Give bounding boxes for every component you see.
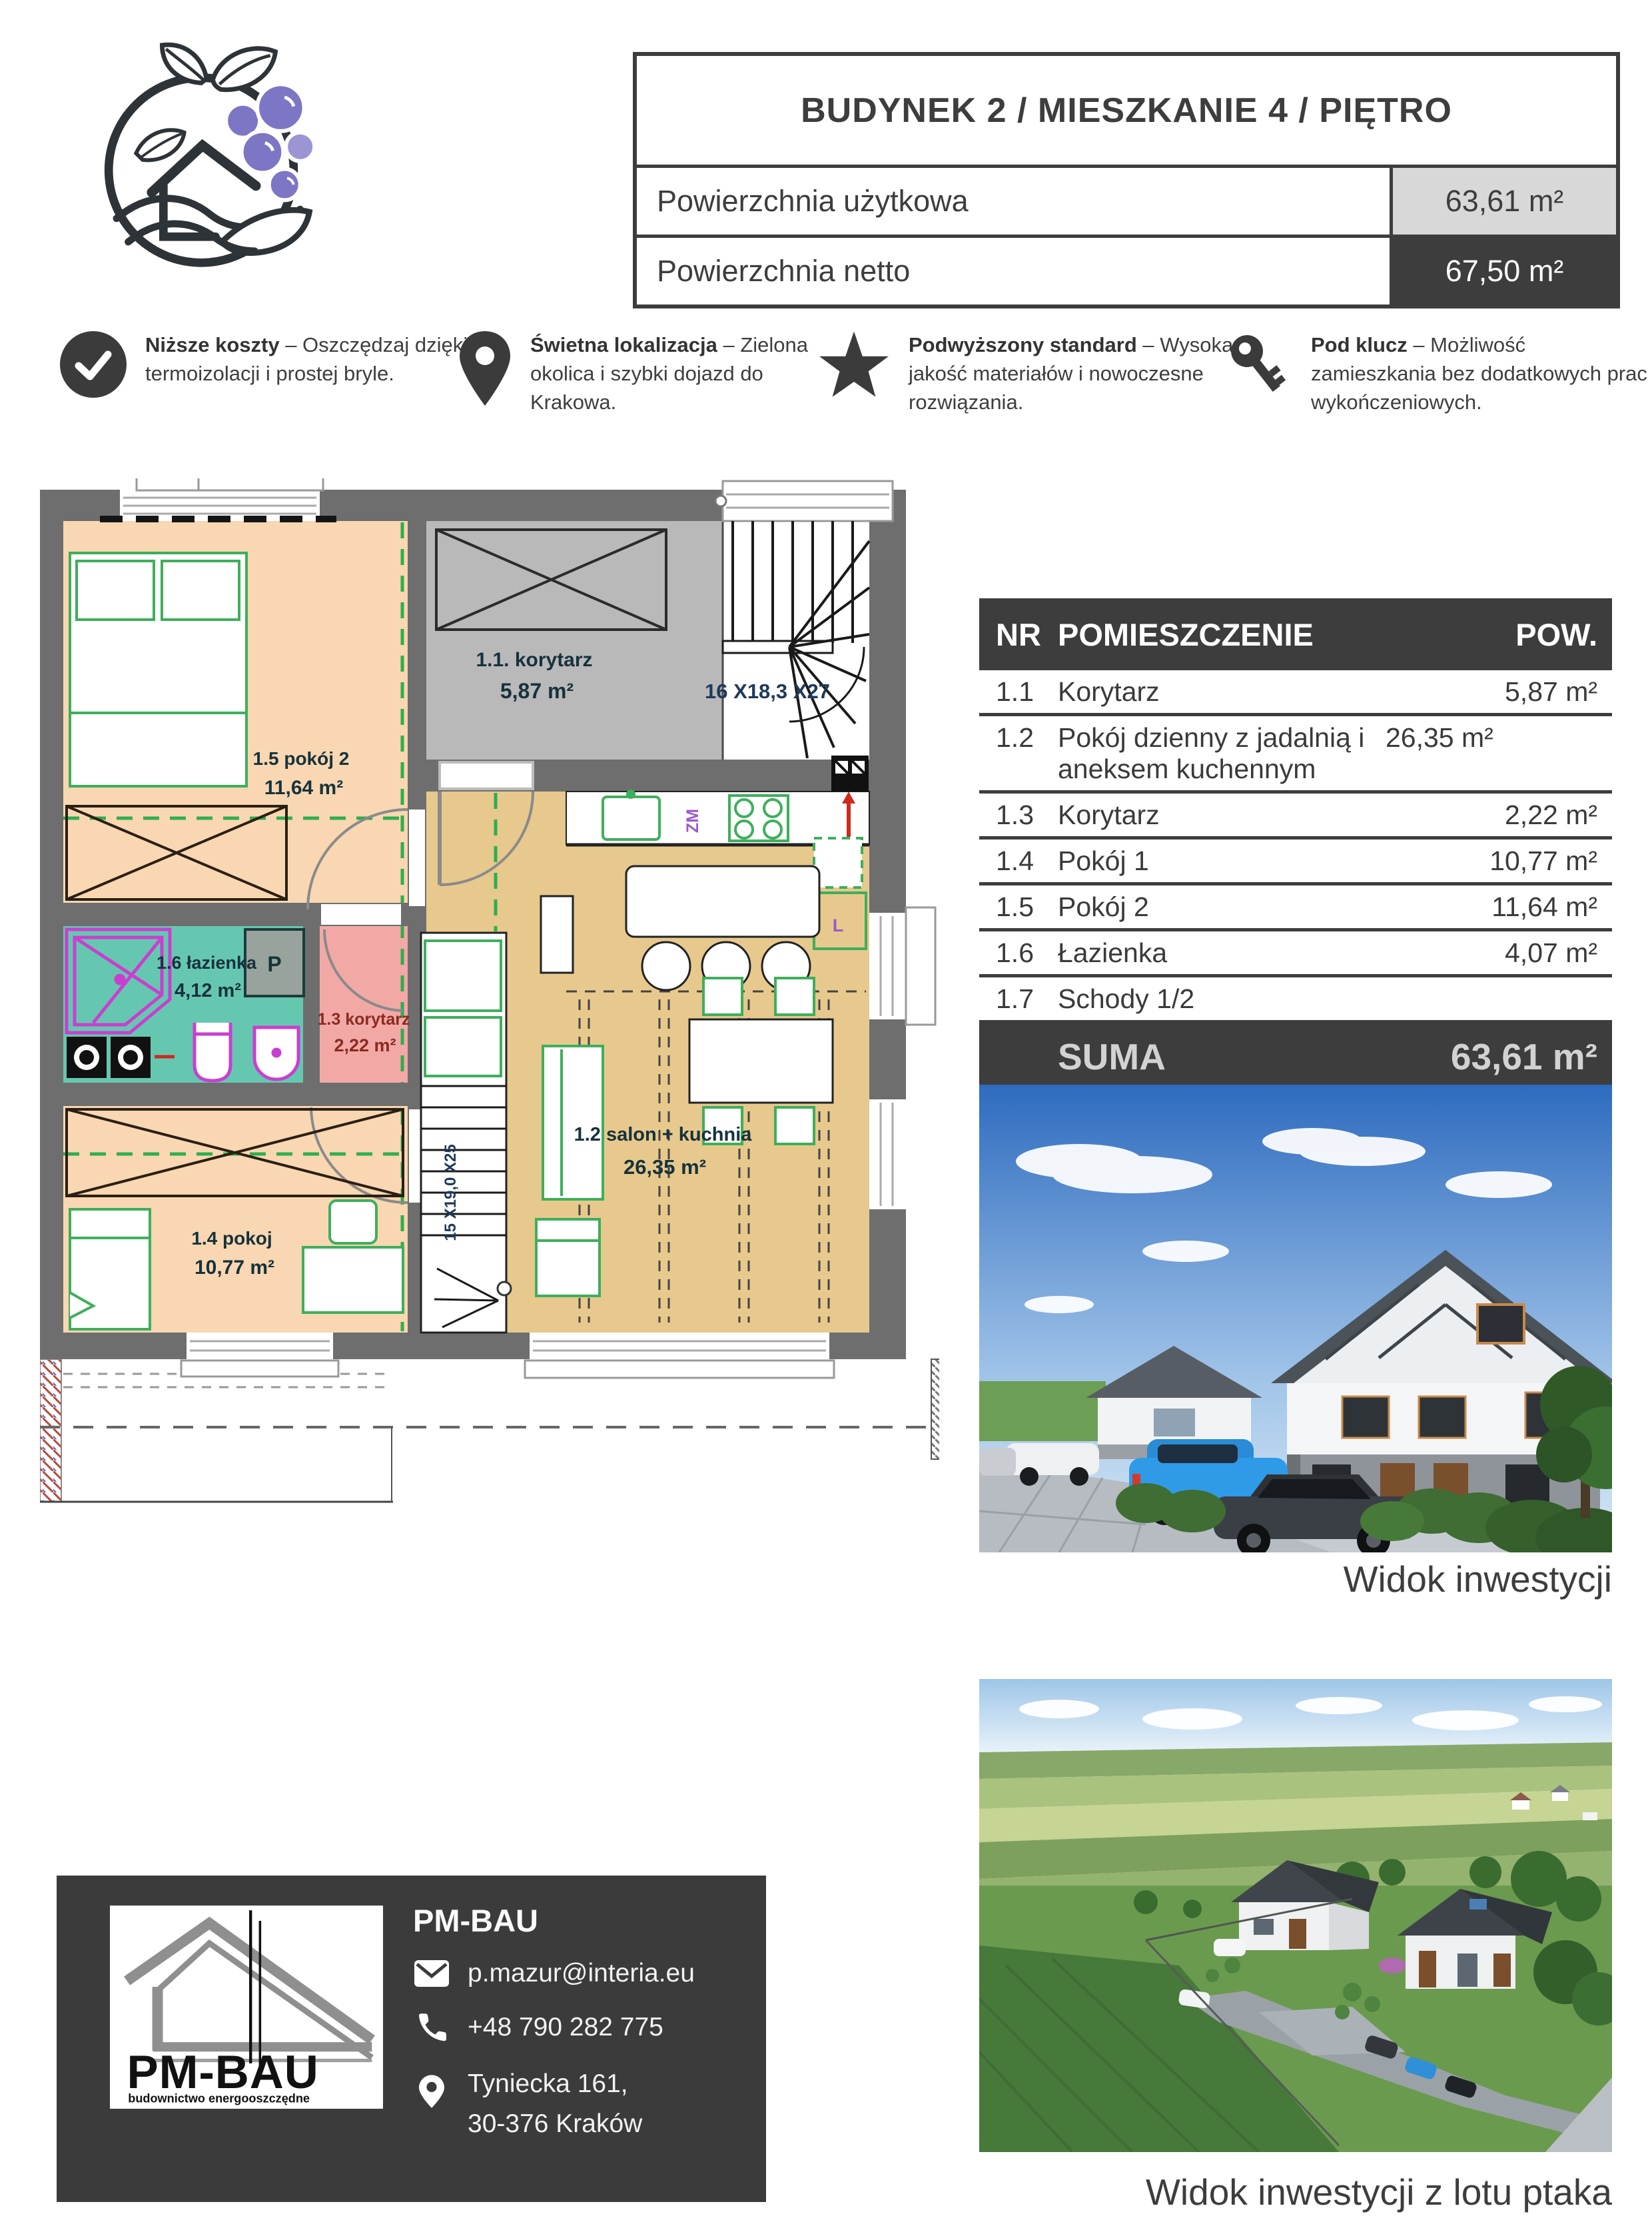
svg-text:2,22 m²: 2,22 m² [334,1035,396,1055]
pmbau-logo-tagline: budownictwo energooszczędne [128,2091,310,2105]
pmbau-logo: PM-BAU budownictwo energooszczędne [110,1906,383,2109]
svg-text:11,64 m²: 11,64 m² [264,777,343,799]
spec-row-net-area: Powierzchnia netto 67,50 m² [637,235,1616,304]
svg-text:1.3 korytarz: 1.3 korytarz [318,1010,410,1029]
footer-address: Tyniecka 161, 30-376 Kraków [468,2064,642,2145]
feature-text: Podwyższony standard – Wysoka jakość mat… [909,331,1238,416]
footer-contact-card: PM-BAU budownictwo energooszczędne PM-BA… [57,1876,766,2202]
room-hall-fill [426,521,723,760]
brand-logo [85,35,320,276]
sofa [543,1046,603,1199]
closet-label: P [267,952,281,976]
footer-email: p.mazur@interia.eu [468,1959,695,1988]
svg-text:10,77 m²: 10,77 m² [195,1257,274,1279]
flyer-page: BUDYNEK 2 / MIESZKANIE 4 / PIĘTRO Powier… [0,0,1652,2238]
table-row: 1.4 Pokój 1 10,77 m² [979,839,1612,885]
stairs-lower-spec: 15 X19,0 X25 [442,1144,460,1241]
floorplan-drawing: 16 X18,3 X27 15 X19,0 X25 [40,478,939,1511]
feature-text: Pod klucz – Możliwość zamieszkania bez d… [1311,331,1652,416]
table-sum-row: SUMA 63,61 m² [979,1023,1612,1090]
stairs-upper-spec: 16 X18,3 X27 [705,680,830,703]
room-table: NR POMIESZCZENIE POW. 1.1 Korytarz 5,87 … [979,598,1612,1090]
spec-row-usable-area: Powierzchnia użytkowa 63,61 m² [637,168,1616,235]
table-row: 1.7 Schody 1/2 [979,977,1612,1023]
spec-label: Powierzchnia netto [637,238,1390,304]
table-row: 1.2 Pokój dzienny z jadalnią i aneksem k… [979,716,1612,794]
feature-standard: Podwyższony standard – Wysoka jakość mat… [818,331,1238,416]
table-row: 1.6 Łazienka 4,07 m² [979,931,1612,977]
tv-cabinet [541,896,573,973]
col-area: POW. [1515,616,1612,653]
photo1-caption: Widok inwestycji [1344,1558,1612,1600]
footer-address-row: Tyniecka 161, 30-376 Kraków [413,2064,642,2145]
aerial-view-photo [979,1679,1612,2152]
feature-turnkey: Pod klucz – Możliwość zamieszkania bez d… [1226,331,1652,416]
feature-text: Świetna lokalizacja – Zielona okolica i … [530,331,843,416]
investment-view-photo [979,1085,1612,1552]
room-corridor13-fill [320,926,408,1083]
spec-label: Powierzchnia użytkowa [637,168,1390,235]
col-name: POMIESZCZENIE [1058,616,1515,653]
col-nr: NR [979,616,1058,653]
stairs-lower [421,933,511,1333]
bedroom2-furniture [70,553,246,786]
footer-company-name: PM-BAU [413,1902,538,1939]
house-grapes-logo-icon [85,35,320,276]
svg-text:1.2 salon + kuchnia: 1.2 salon + kuchnia [574,1124,753,1145]
key-icon [1226,331,1292,404]
toilet [195,1023,230,1081]
spec-title: BUDYNEK 2 / MIESZKANIE 4 / PIĘTRO [637,56,1616,168]
floorplan: 16 X18,3 X27 15 X19,0 X25 [40,478,939,1511]
sink [254,1027,298,1079]
footer-phone-row: +48 790 282 775 [413,2012,663,2043]
armchair [536,1219,600,1296]
svg-text:1.1. korytarz: 1.1. korytarz [476,649,592,671]
bedroom1-bed [70,1209,150,1329]
location-pin-icon [458,331,512,411]
feature-lower-costs: Niższe koszty – Oszczędzaj dzięki termoi… [60,331,526,401]
kitchen-sink [603,790,659,839]
dishwasher-label: ZM [683,809,702,833]
spec-value: 67,50 m² [1390,238,1616,304]
table-row: 1.5 Pokój 2 11,64 m² [979,885,1612,931]
photo2-caption: Widok inwestycji z lotu ptaka [1146,2171,1612,2213]
pmbau-logo-text: PM-BAU [127,2045,319,2098]
spec-table: BUDYNEK 2 / MIESZKANIE 4 / PIĘTRO Powier… [633,52,1620,308]
fridge-label: L [833,915,844,935]
room-table-header: NR POMIESZCZENIE POW. [979,598,1612,670]
footer-email-row: p.mazur@interia.eu [413,1959,695,1988]
star-icon [818,331,890,404]
footer-phone: +48 790 282 775 [468,2013,663,2042]
table-row: 1.3 Korytarz 2,22 m² [979,794,1612,839]
table-row: 1.1 Korytarz 5,87 m² [979,670,1612,716]
svg-text:5,87 m²: 5,87 m² [500,679,574,703]
terrace [40,1359,939,1502]
svg-text:1.5 pokój 2: 1.5 pokój 2 [253,748,350,769]
grapes-icon [226,84,314,200]
svg-text:1.6 łazienka: 1.6 łazienka [157,953,257,973]
svg-text:4,12 m²: 4,12 m² [175,980,241,1001]
email-icon [413,1960,450,1987]
kitchen-island [626,866,819,990]
phone-icon [413,2012,450,2043]
sum-value: 63,61 m² [1451,1035,1612,1078]
svg-text:1.4 pokoj: 1.4 pokoj [191,1228,272,1249]
svg-text:26,35 m²: 26,35 m² [623,1155,706,1179]
feature-location: Świetna lokalizacja – Zielona okolica i … [458,331,858,416]
check-icon [60,331,127,401]
kitchen-stove [729,796,788,841]
spec-value: 63,61 m² [1390,168,1616,235]
sum-label: SUMA [1058,1035,1451,1078]
address-pin-icon [413,2064,450,2109]
